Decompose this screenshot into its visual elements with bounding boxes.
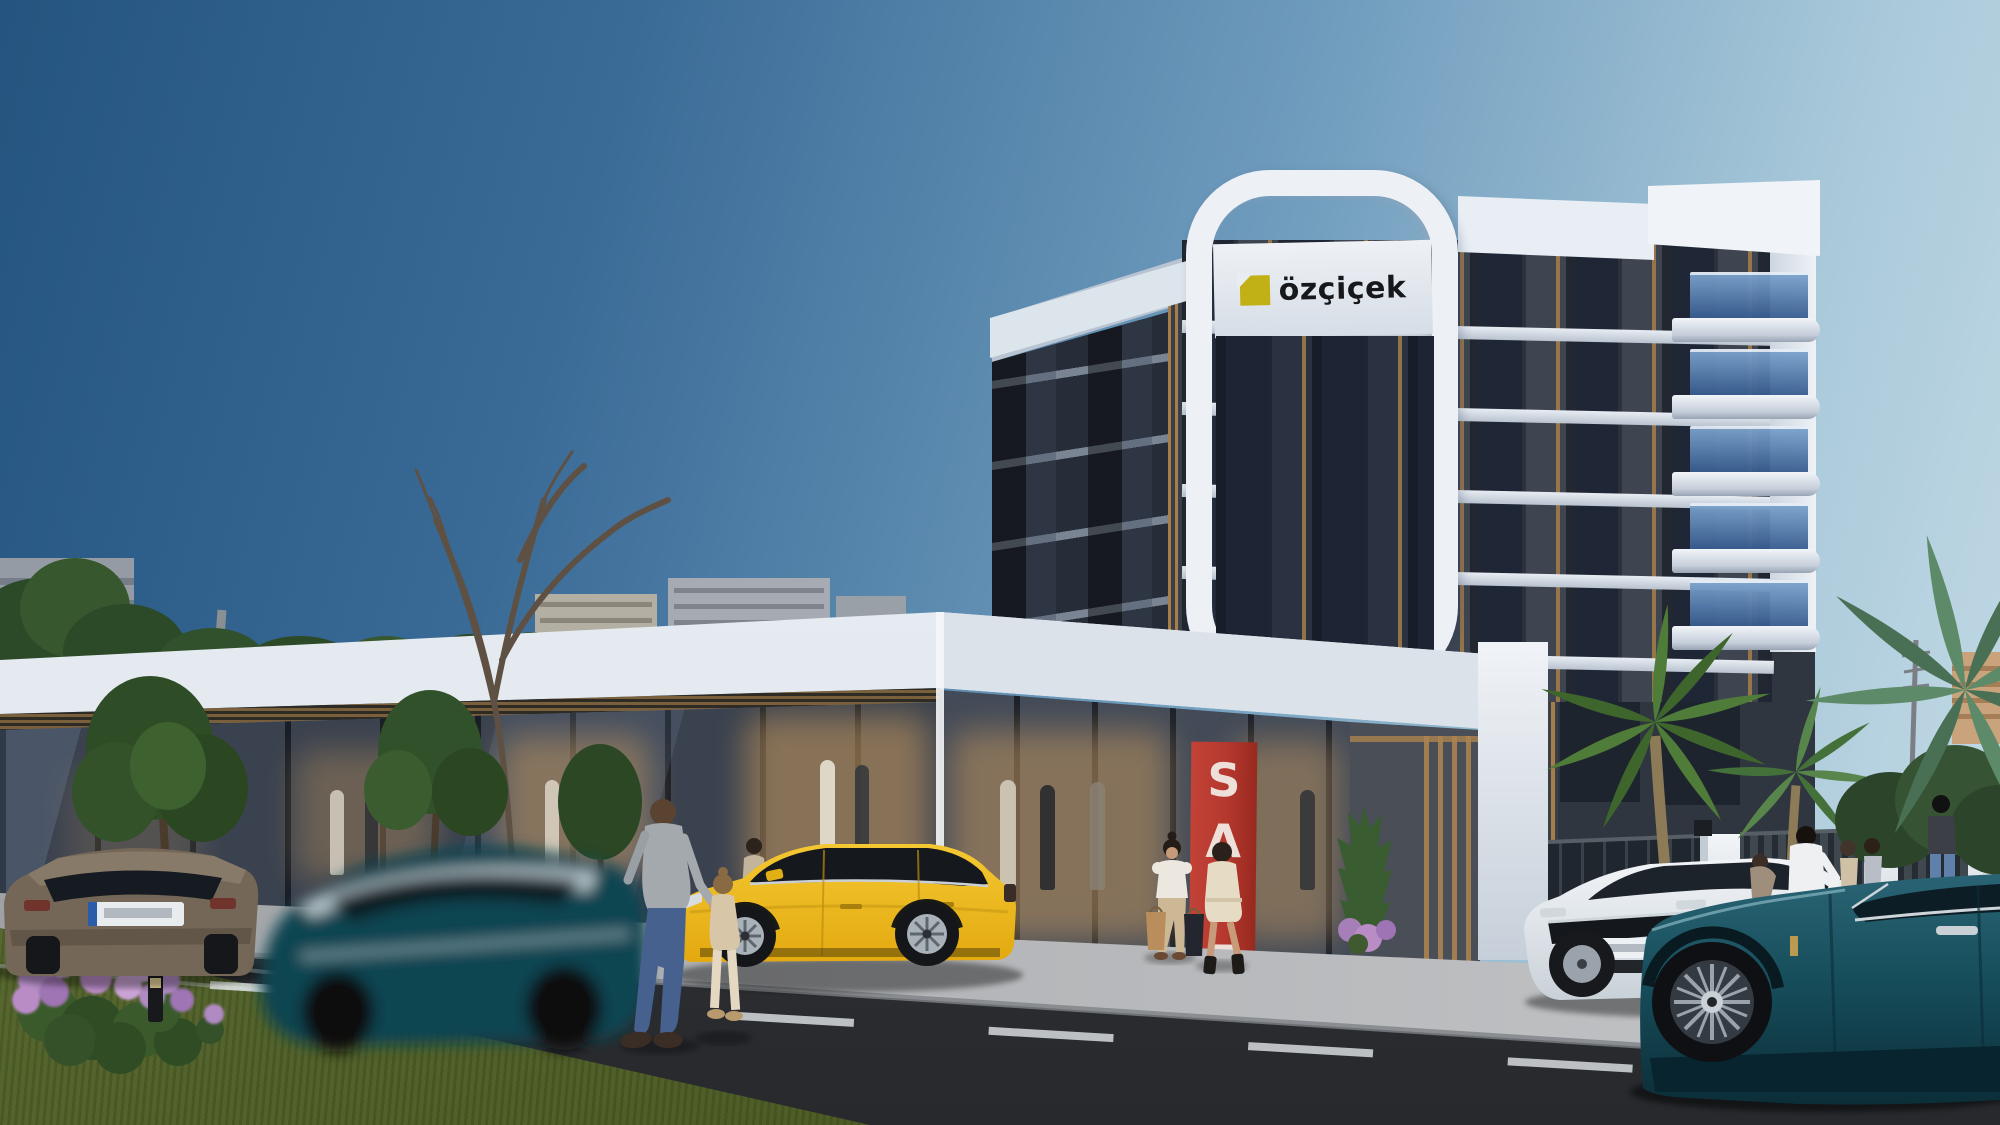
pillar-lamp bbox=[1694, 820, 1712, 836]
foreground bbox=[0, 0, 2000, 1125]
door-handle bbox=[1936, 926, 1978, 935]
fender-badge bbox=[1790, 936, 1798, 956]
parked-hatchback bbox=[0, 848, 265, 988]
license-plate bbox=[88, 902, 184, 926]
architectural-render-scene: özçiçek S A bbox=[0, 0, 2000, 1125]
shopper-trench-coat bbox=[1196, 842, 1248, 975]
shopping-bag bbox=[1146, 912, 1166, 950]
shopper-with-bags bbox=[1144, 832, 1204, 965]
moving-car-motion-blur bbox=[262, 848, 648, 1052]
front-wheel bbox=[1652, 942, 1772, 1062]
front-wheel bbox=[1549, 931, 1615, 997]
cypress-tree bbox=[1337, 806, 1396, 954]
shopping-bag bbox=[1184, 914, 1204, 956]
rear-wheel bbox=[895, 902, 959, 966]
